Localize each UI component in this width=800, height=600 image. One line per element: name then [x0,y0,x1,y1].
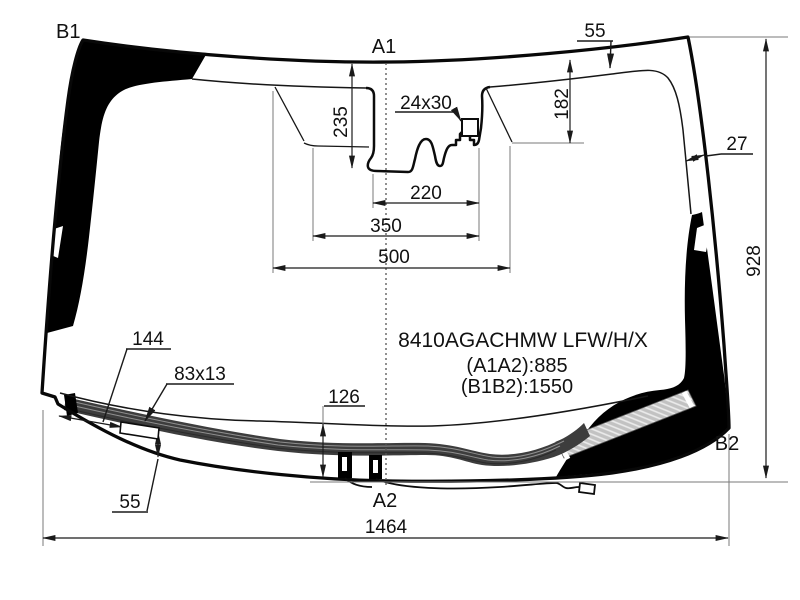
diagram-canvas: B1 A1 A2 B2 55 27 928 235 182 24x30 220 … [0,0,800,600]
dim-cutout-w220: 220 [410,183,442,204]
dim-sensor-window: 24x30 [400,93,452,114]
dim-glass-height: 928 [744,245,765,277]
dim-heater-pad: 83x13 [174,364,226,385]
dim-cutout-w350: 350 [370,216,402,237]
part-code: 8410AGACHMW LFW/H/X [398,329,648,352]
dim-top-band: 55 [584,21,605,42]
part-a1a2: (A1A2):885 [466,355,567,377]
dim-right-band: 27 [726,134,747,155]
ref-a1: A1 [372,36,396,58]
ref-a2: A2 [373,490,397,512]
windshield-diagram: B1 A1 A2 B2 55 27 928 235 182 24x30 220 … [0,0,800,600]
dim-glass-width: 1464 [365,517,408,538]
wire-connector-plug [579,483,595,494]
dim-bottom-band: 126 [328,387,360,408]
dim-cutout-depth-left: 235 [331,106,352,138]
dim-cutout-w500: 500 [378,247,410,268]
sensor-window [462,119,478,136]
dim-heater-gap: 55 [119,492,140,513]
dim-heater-offset: 144 [132,329,164,350]
ref-b2: B2 [715,433,739,455]
part-b1b2: (B1B2):1550 [461,376,573,398]
ref-b1: B1 [56,21,80,43]
dim-cutout-depth-right: 182 [552,88,573,120]
